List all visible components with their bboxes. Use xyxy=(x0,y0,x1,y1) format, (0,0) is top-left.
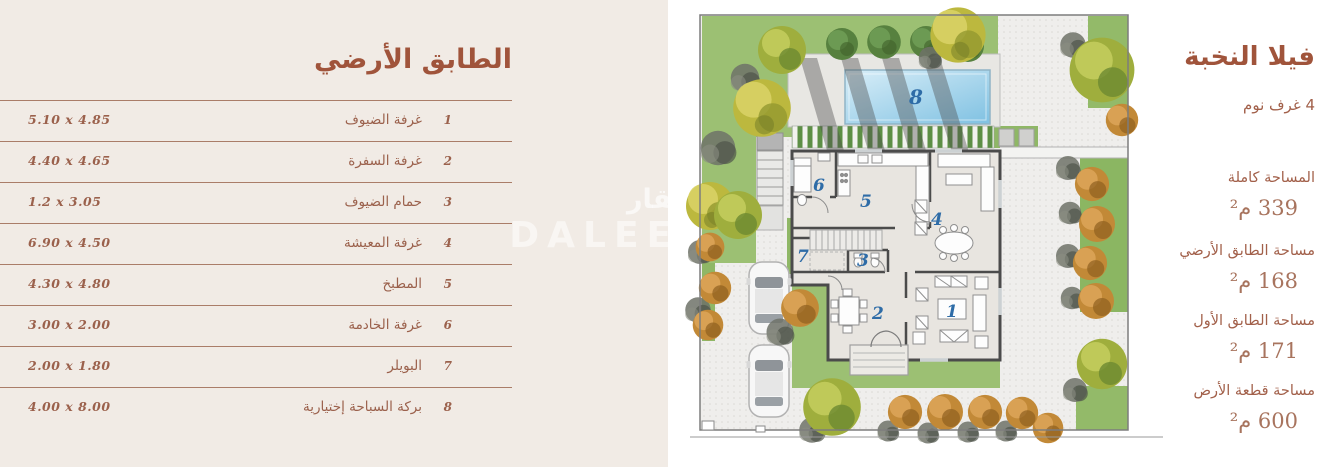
room-name: غرفة المعيشة xyxy=(344,235,422,251)
room-name: بركة السباحة إختيارية xyxy=(303,399,422,415)
area-label-plot: مساحة قطعة الأرض xyxy=(1193,383,1315,399)
ground-floor-panel: الطابق الأرضي 5.10 x 4.85 غرفة الضيوف 1 … xyxy=(0,0,668,467)
room-number: 7 xyxy=(444,359,452,373)
gate-marker xyxy=(756,426,765,432)
room-name: البويلر xyxy=(387,358,422,374)
room-number: 8 xyxy=(444,400,452,414)
area-label-first-floor: مساحة الطابق الأول xyxy=(1193,313,1315,329)
table-row: 4.40 x 4.65 غرفة السفرة 2 xyxy=(0,141,512,182)
room-dimensions: 4.00 x 8.00 xyxy=(28,399,111,414)
room-name: غرفة الضيوف xyxy=(345,112,422,128)
room-name: حمام الضيوف xyxy=(344,194,422,210)
area-value-ground-floor: 168 م² xyxy=(1230,269,1298,293)
area-label-ground-floor: مساحة الطابق الأرضي xyxy=(1179,243,1315,259)
plan-number-kitchen: 5 xyxy=(860,192,872,212)
table-row: 6.90 x 4.50 غرفة المعيشة 4 xyxy=(0,223,512,264)
plan-number-maid-room: 6 xyxy=(813,176,825,196)
site-plan: 8 6 5 4 7 3 2 1 xyxy=(660,0,1163,467)
area-value-total: 339 م² xyxy=(1230,196,1298,220)
plan-number-living-room: 4 xyxy=(931,210,943,230)
plan-number-pool: 8 xyxy=(908,85,923,109)
plan-number-guest-room: 1 xyxy=(946,302,958,322)
room-name: المطبخ xyxy=(382,276,422,292)
villa-info-panel: فيلا النخبة 4 غرف نوم المساحة كاملة 339 … xyxy=(1138,0,1338,467)
area-value-first-floor: 171 م² xyxy=(1230,339,1298,363)
room-dimensions: 2.00 x 1.80 xyxy=(28,358,111,373)
room-name: غرفة الخادمة xyxy=(348,317,422,333)
car xyxy=(747,345,792,417)
room-dimensions: 4.40 x 4.65 xyxy=(28,153,111,168)
site-plan-drawing: 8 6 5 4 7 3 2 1 xyxy=(660,0,1163,467)
room-number: 6 xyxy=(444,318,452,332)
room-name: غرفة السفرة xyxy=(348,153,422,169)
room-number: 2 xyxy=(444,154,452,168)
table-row: 3.00 x 2.00 غرفة الخادمة 6 xyxy=(0,305,512,346)
table-row: 4.30 x 4.80 المطبخ 5 xyxy=(0,264,512,305)
table-row: 4.00 x 8.00 بركة السباحة إختيارية 8 xyxy=(0,387,512,428)
area-value-plot: 600 م² xyxy=(1230,409,1298,433)
room-number: 4 xyxy=(444,236,452,250)
table-row: 5.10 x 4.85 غرفة الضيوف 1 xyxy=(0,100,512,141)
table-row: 1.2 x 3.05 حمام الضيوف 3 xyxy=(0,182,512,223)
room-dimensions: 4.30 x 4.80 xyxy=(28,276,111,291)
plan-number-boiler: 7 xyxy=(797,247,809,267)
gate-marker xyxy=(702,421,714,430)
room-table: 5.10 x 4.85 غرفة الضيوف 1 4.40 x 4.65 غر… xyxy=(0,100,512,428)
ground-floor-title: الطابق الأرضي xyxy=(314,44,512,75)
room-dimensions: 3.00 x 2.00 xyxy=(28,317,111,332)
room-dimensions: 1.2 x 3.05 xyxy=(28,194,101,209)
table-row: 2.00 x 1.80 البويلر 7 xyxy=(0,346,512,387)
room-dimensions: 5.10 x 4.85 xyxy=(28,112,111,127)
area-label-total: المساحة كاملة xyxy=(1228,170,1315,186)
bedrooms-count: 4 غرف نوم xyxy=(1243,96,1315,114)
room-number: 3 xyxy=(444,195,452,209)
plan-number-dining: 2 xyxy=(871,304,884,324)
room-dimensions: 6.90 x 4.50 xyxy=(28,235,111,250)
side-walkway xyxy=(1000,147,1128,158)
room-number: 1 xyxy=(444,113,452,127)
room-number: 5 xyxy=(444,277,452,291)
plan-number-guest-bath: 3 xyxy=(857,251,869,271)
villa-title: فيلا النخبة xyxy=(1184,42,1315,72)
